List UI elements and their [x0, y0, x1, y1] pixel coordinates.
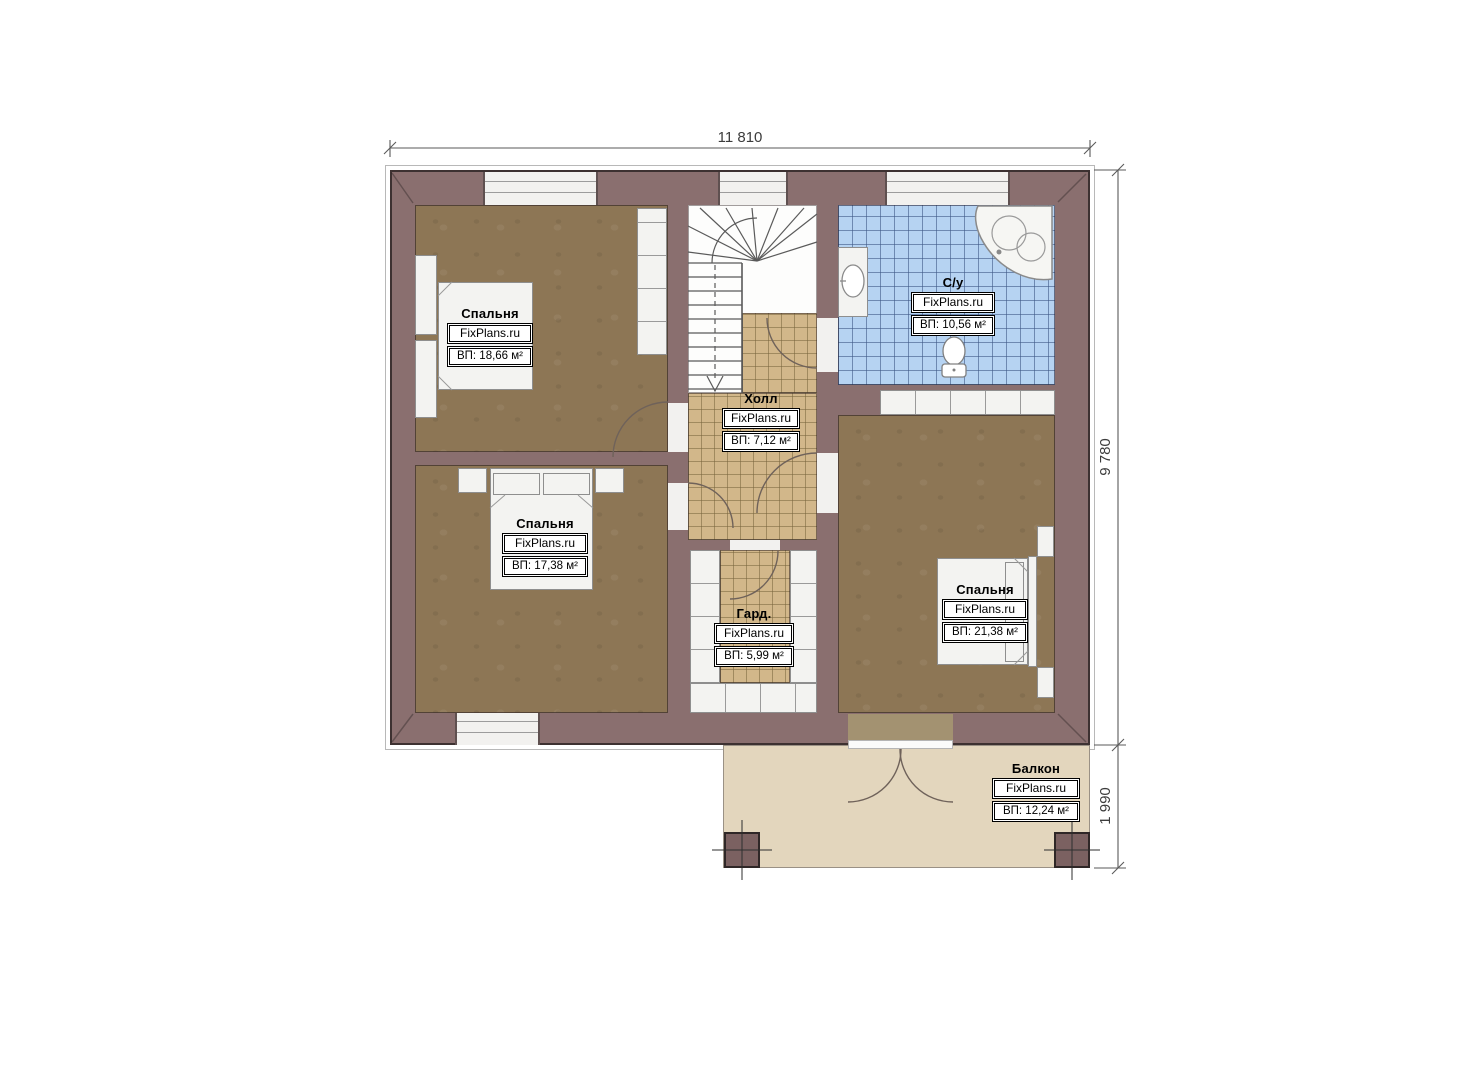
- watermark-box: FixPlans.ru: [722, 408, 800, 429]
- nightstand-bedroom3-b: [1037, 667, 1054, 698]
- area-box: ВП: 7,12 м²: [722, 431, 800, 452]
- nightstand-bedroom2-a: [458, 468, 487, 493]
- door-gap-bedroom1: [668, 403, 688, 452]
- area-box: ВП: 5,99 м²: [714, 646, 794, 667]
- hall-floor-upper: [742, 313, 817, 393]
- door-gap-bedroom3: [817, 453, 838, 513]
- pillow-bedroom2-b: [543, 473, 590, 495]
- room-label-balcony: Балкон FixPlans.ru ВП: 12,24 м²: [992, 761, 1080, 822]
- dimension-side-label: 9 780: [1097, 438, 1114, 476]
- room-label-bedroom3: Спальня FixPlans.ru ВП: 21,38 м²: [942, 582, 1028, 643]
- cabinet-row-bedroom3: [880, 390, 1055, 415]
- watermark-box: FixPlans.ru: [911, 292, 995, 313]
- area-box: ВП: 17,38 м²: [502, 556, 588, 577]
- nightstand-bedroom1-b: [415, 340, 437, 418]
- room-label-wardrobe: Гард. FixPlans.ru ВП: 5,99 м²: [714, 606, 794, 667]
- wardrobe-shelf-right: [790, 550, 817, 683]
- room-name: Спальня: [447, 306, 533, 321]
- room-label-bedroom1: Спальня FixPlans.ru ВП: 18,66 м²: [447, 306, 533, 367]
- nightstand-bedroom1-a: [415, 255, 437, 335]
- balcony-column-left: [724, 832, 760, 868]
- area-box: ВП: 21,38 м²: [942, 622, 1028, 643]
- nightstand-bedroom2-b: [595, 468, 624, 493]
- area-box: ВП: 18,66 м²: [447, 346, 533, 367]
- sink-counter: [838, 247, 868, 317]
- area-box: ВП: 10,56 м²: [911, 315, 995, 336]
- dimension-balcony-label: 1 990: [1097, 787, 1114, 825]
- room-name: Гард.: [714, 606, 794, 621]
- door-gap-bedroom2: [668, 483, 688, 530]
- window-stairwell-top: [718, 172, 788, 205]
- window-bedroom2-bottom: [455, 713, 540, 745]
- room-name: С/у: [911, 275, 995, 290]
- headboard-bedroom3: [1028, 556, 1037, 667]
- balcony-door-sill: [848, 740, 953, 749]
- room-label-bathroom: С/у FixPlans.ru ВП: 10,56 м²: [911, 275, 995, 336]
- wardrobe-shelf-bottom: [690, 683, 817, 713]
- room-name: Спальня: [942, 582, 1028, 597]
- dimension-top-label: 11 810: [718, 129, 763, 146]
- room-name: Спальня: [502, 516, 588, 531]
- area-box: ВП: 12,24 м²: [992, 801, 1080, 822]
- window-bedroom1-top: [483, 172, 598, 205]
- pillow-bedroom2-a: [493, 473, 540, 495]
- balcony-column-right: [1054, 832, 1090, 868]
- balcony-door-threshold: [848, 714, 953, 741]
- watermark-box: FixPlans.ru: [502, 533, 588, 554]
- room-name: Холл: [722, 391, 800, 406]
- door-gap-wardrobe: [730, 540, 780, 550]
- floor-plan-canvas: 11 810 9 780 1 990 Спальня FixPlans.ru В…: [0, 0, 1473, 1080]
- window-bathroom-top: [885, 172, 1010, 205]
- room-label-bedroom2: Спальня FixPlans.ru ВП: 17,38 м²: [502, 516, 588, 577]
- nightstand-bedroom3-a: [1037, 526, 1054, 557]
- room-label-hall: Холл FixPlans.ru ВП: 7,12 м²: [722, 391, 800, 452]
- watermark-box: FixPlans.ru: [447, 323, 533, 344]
- room-name: Балкон: [992, 761, 1080, 776]
- watermark-box: FixPlans.ru: [992, 778, 1080, 799]
- door-gap-bathroom: [817, 318, 838, 372]
- watermark-box: FixPlans.ru: [942, 599, 1028, 620]
- watermark-box: FixPlans.ru: [714, 623, 794, 644]
- closet-bedroom1: [637, 208, 667, 355]
